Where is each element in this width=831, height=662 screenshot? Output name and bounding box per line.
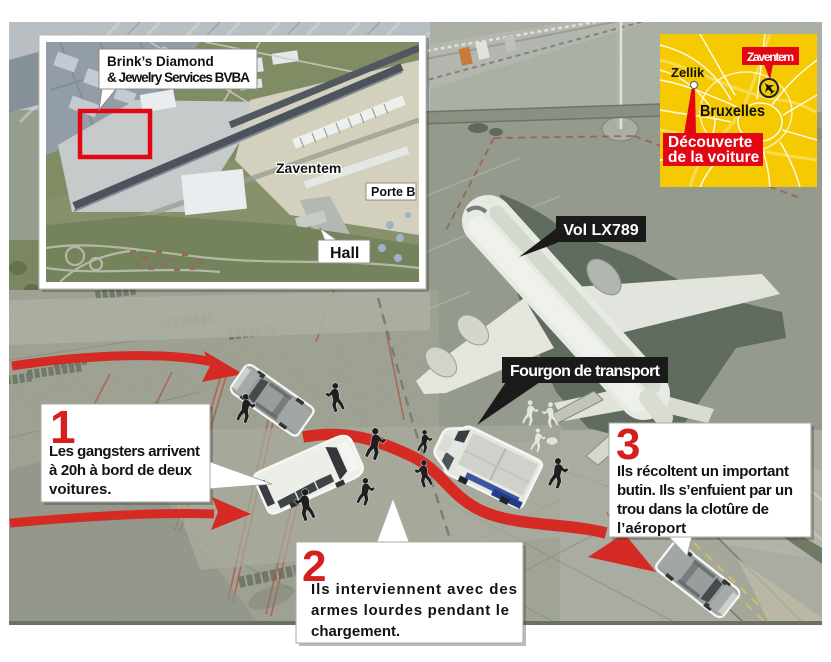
svg-text:trou dans la clotûre de: trou dans la clotûre de xyxy=(617,501,769,518)
svg-text:à 20h à bord de deux: à 20h à bord de deux xyxy=(49,462,193,479)
svg-text:Zellik: Zellik xyxy=(671,65,705,80)
svg-text:armes lourdes pendant le: armes lourdes pendant le xyxy=(311,602,509,619)
svg-text:de la voiture: de la voiture xyxy=(668,149,760,166)
svg-text:Bruxelles: Bruxelles xyxy=(700,103,765,120)
svg-text:Zaventem: Zaventem xyxy=(747,50,794,64)
svg-text:Ils récoltent un important: Ils récoltent un important xyxy=(617,463,789,480)
svg-text:voitures.: voitures. xyxy=(49,481,112,498)
svg-text:Les gangsters arrivent: Les gangsters arrivent xyxy=(49,443,200,460)
svg-text:chargement.: chargement. xyxy=(311,623,400,640)
svg-text:& Jewelry Services BVBA: & Jewelry Services BVBA xyxy=(107,70,250,85)
svg-text:Porte B: Porte B xyxy=(371,185,415,199)
svg-text:Ils interviennent avec des: Ils interviennent avec des xyxy=(311,581,517,598)
svg-text:butin. Ils s’enfuient par un: butin. Ils s’enfuient par un xyxy=(617,482,793,499)
svg-text:l’aéroport: l’aéroport xyxy=(617,520,686,537)
svg-text:Vol LX789: Vol LX789 xyxy=(563,222,638,239)
svg-text:Brink’s Diamond: Brink’s Diamond xyxy=(107,54,214,69)
svg-text:Fourgon de transport: Fourgon de transport xyxy=(510,363,661,380)
svg-text:Zaventem: Zaventem xyxy=(276,160,341,176)
svg-text:3: 3 xyxy=(616,420,640,469)
svg-text:Hall: Hall xyxy=(330,245,359,262)
